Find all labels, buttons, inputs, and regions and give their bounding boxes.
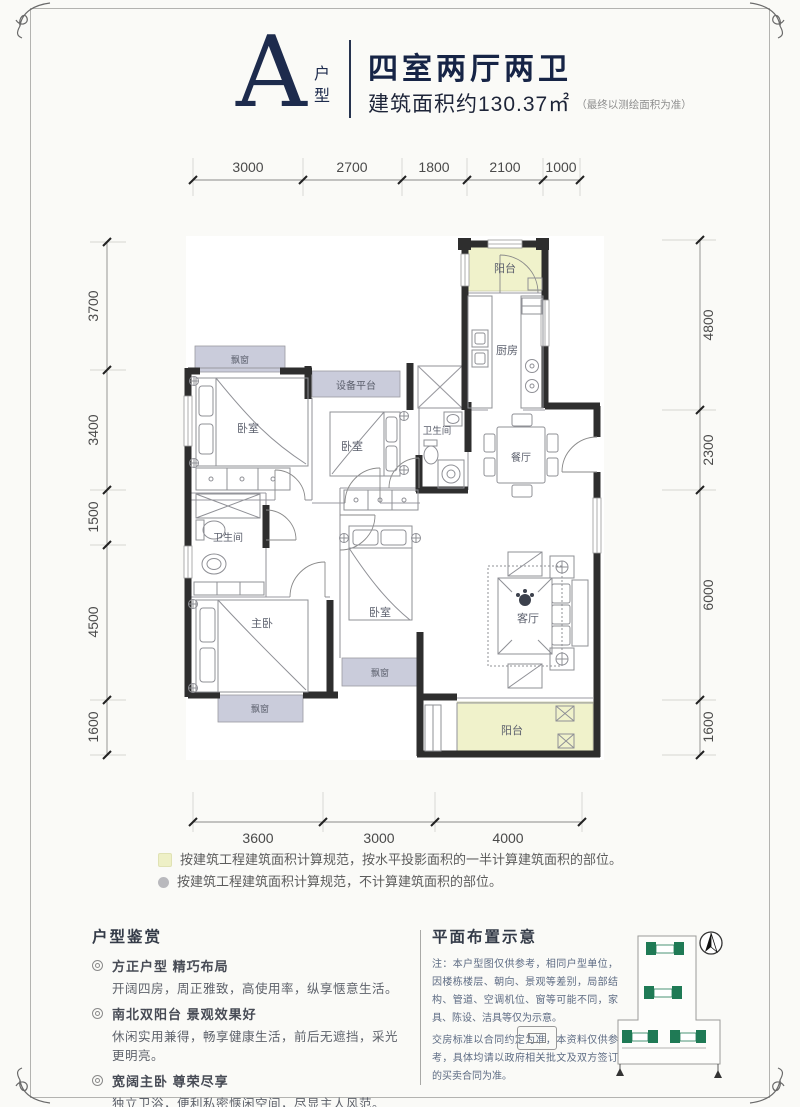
appreciation-headline: 宽阔主卧 尊荣尽享 — [112, 1071, 229, 1090]
legend-row-excluded: 按建筑工程建筑面积计算规范，不计算建筑面积的部位。 — [158, 871, 622, 893]
dim-top-1: 3000 — [232, 159, 263, 175]
corner-flourish-icon — [12, 0, 52, 40]
appreciation-item: 南北双阳台 景观效果好 休闲实用兼得，畅享健康生活，前后无遮挡，采光更明亮。 — [92, 1004, 410, 1064]
dim-left-5: 1600 — [85, 711, 101, 742]
room-label-bedroom-3: 卧室 — [369, 605, 391, 619]
wall-pier — [458, 238, 471, 250]
dim-bottom-1: 3600 — [242, 830, 273, 846]
half-area-marker-icon — [158, 853, 172, 867]
site-map — [608, 928, 730, 1086]
siteplan-panel: 平面布置示意 注：本户型图仅供参考，相同户型单位，因楼栋楼层、朝向、景观等差别，… — [432, 925, 618, 1086]
appreciation-item: 宽阔主卧 尊荣尽享 独立卫浴，便利私密惬闲空间，尽显主人风范。 — [92, 1071, 410, 1107]
room-label-bathroom-1: 卫生间 — [423, 425, 452, 437]
unit-type-suffix: 户型 — [314, 64, 332, 107]
excluded-area-marker-icon — [158, 877, 169, 888]
corner-flourish-icon — [748, 0, 788, 40]
room-label-bay-window-2: 飘窗 — [251, 703, 269, 714]
dim-top-2: 2700 — [336, 159, 367, 175]
room-label-balcony-south: 阳台 — [501, 723, 523, 737]
dim-right-1: 4800 — [700, 309, 716, 340]
appreciation-item: 方正户型 精巧布局 开阔四房，周正雅致，高使用率，纵享惬意生活。 — [92, 956, 410, 997]
area-legend: 按建筑工程建筑面积计算规范，按水平投影面积的一半计算建筑面积的部位。 按建筑工程… — [158, 849, 622, 893]
bullet-ring-icon — [92, 960, 103, 971]
room-label-bathroom-2: 卫生间 — [213, 531, 243, 544]
dim-left-4: 4500 — [85, 606, 101, 637]
page-title: 四室两厅两卫 — [368, 44, 572, 88]
room-label-equipment-platform: 设备平台 — [336, 379, 376, 392]
siteplan-title: 平面布置示意 — [432, 925, 618, 947]
bullet-ring-icon — [92, 1008, 103, 1019]
area-value: 建筑面积约130.37㎡ — [368, 93, 570, 116]
appreciation-detail: 休闲实用兼得，畅享健康生活，前后无遮挡，采光更明亮。 — [112, 1026, 410, 1064]
panel-divider — [420, 930, 421, 1085]
room-label-living: 客厅 — [517, 611, 539, 625]
dim-bottom-3: 4000 — [492, 830, 523, 846]
appreciation-title: 户型鉴赏 — [92, 925, 410, 947]
unit-type-letter: A — [236, 24, 307, 122]
dim-left-1: 3700 — [85, 290, 101, 321]
floor-plan: 3000 2700 1800 2100 1000 3700 3400 1500 … — [85, 148, 725, 860]
room-label-bay-window-3: 飘窗 — [371, 667, 389, 678]
corner-flourish-icon — [748, 1066, 788, 1106]
room-label-bedroom-1: 卧室 — [237, 421, 259, 435]
appreciation-detail: 独立卫浴，便利私密惬闲空间，尽显主人风范。 — [112, 1093, 410, 1107]
header-divider — [349, 40, 351, 118]
dim-bottom-2: 3000 — [363, 830, 394, 846]
excluded-area-note: 按建筑工程建筑面积计算规范，不计算建筑面积的部位。 — [177, 871, 502, 893]
area-text: 建筑面积约130.37㎡（最终以测绘面积为准） — [368, 88, 692, 118]
legend-row-half-area: 按建筑工程建筑面积计算规范，按水平投影面积的一半计算建筑面积的部位。 — [158, 849, 622, 871]
dim-top-3: 1800 — [418, 159, 449, 175]
room-label-bedroom-2: 卧室 — [341, 439, 363, 453]
floorplan-page: A 户型 四室两厅两卫 建筑面积约130.37㎡（最终以测绘面积为准） — [0, 0, 800, 1107]
site-markers — [616, 1064, 722, 1078]
dim-right-2: 2300 — [700, 434, 716, 465]
wall-pier — [536, 238, 549, 250]
corner-flourish-icon — [12, 1066, 52, 1106]
dim-top-5: 1000 — [545, 159, 576, 175]
dim-left-2: 3400 — [85, 414, 101, 445]
room-label-balcony-north: 阳台 — [494, 261, 516, 275]
appreciation-panel: 户型鉴赏 方正户型 精巧布局 开阔四房，周正雅致，高使用率，纵享惬意生活。 南北… — [92, 925, 410, 1107]
appreciation-headline: 南北双阳台 景观效果好 — [112, 1004, 257, 1023]
compass-icon — [700, 932, 722, 954]
area-note: （最终以测绘面积为准） — [576, 99, 692, 111]
room-label-dining: 餐厅 — [511, 451, 531, 464]
dim-left-3: 1500 — [85, 501, 101, 532]
siteplan-legend-box — [517, 1026, 557, 1050]
appreciation-detail: 开阔四房，周正雅致，高使用率，纵享惬意生活。 — [112, 978, 410, 997]
room-label-bay-window-1: 飘窗 — [231, 354, 249, 365]
dim-top-4: 2100 — [489, 159, 520, 175]
room-label-kitchen: 厨房 — [496, 344, 518, 357]
siteplan-note-1: 注：本户型图仅供参考，相同户型单位，因楼栋楼层、朝向、景观等差别，局部结构、管道… — [432, 956, 618, 1028]
appreciation-headline: 方正户型 精巧布局 — [112, 956, 229, 975]
room-label-master-bedroom: 主卧 — [251, 617, 273, 630]
half-area-note: 按建筑工程建筑面积计算规范，按水平投影面积的一半计算建筑面积的部位。 — [180, 849, 622, 871]
dim-right-3: 6000 — [700, 579, 716, 610]
dim-right-4: 1600 — [700, 711, 716, 742]
bullet-ring-icon — [92, 1075, 103, 1086]
